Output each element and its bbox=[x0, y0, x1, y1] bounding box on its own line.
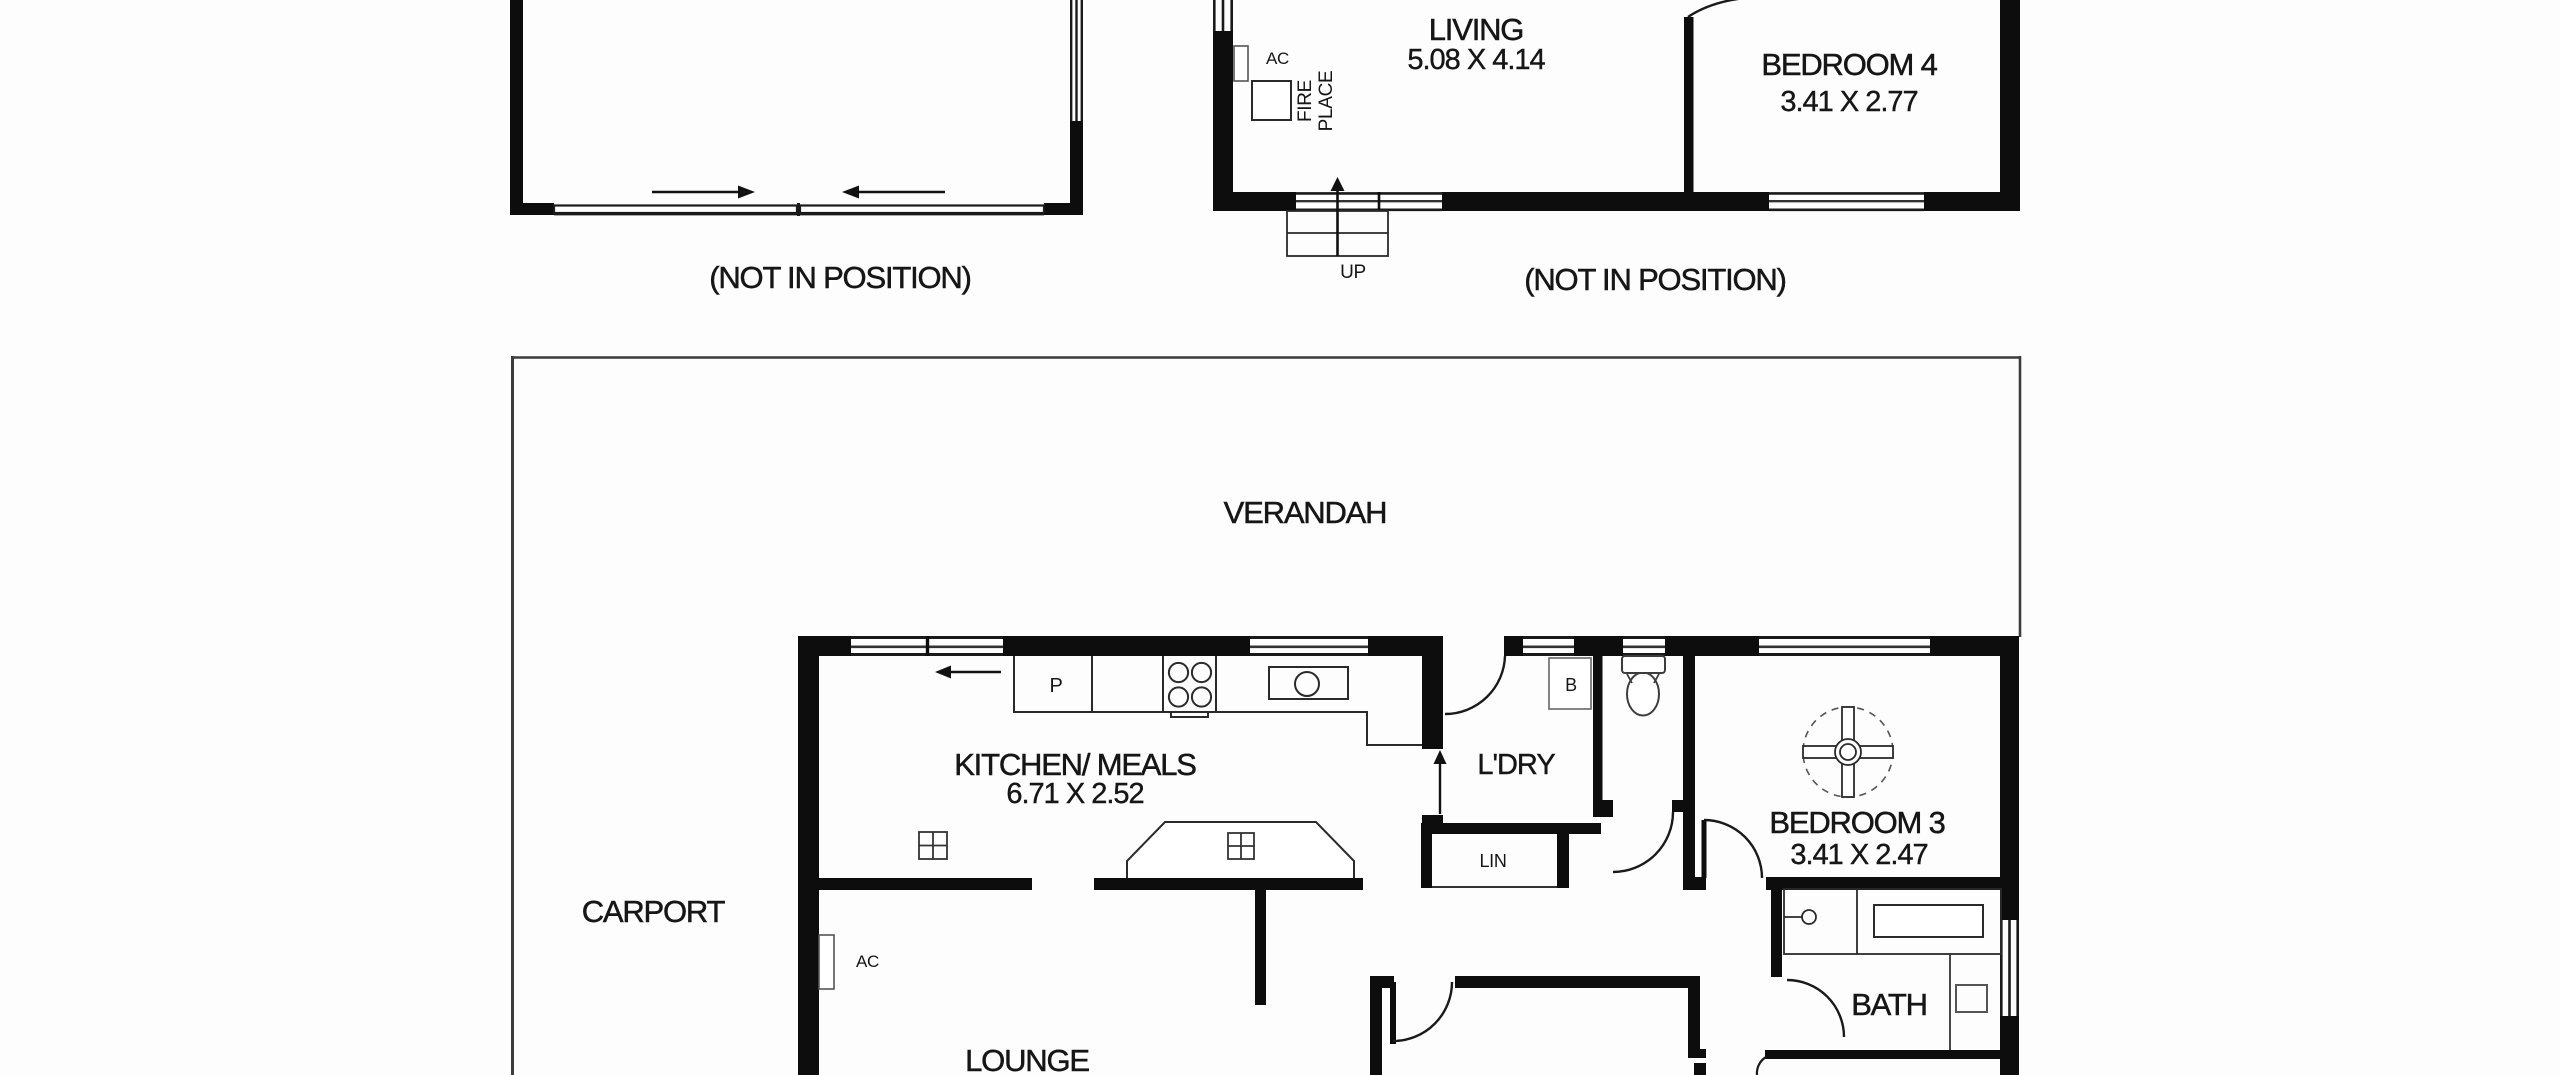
svg-text:3.41 X 2.47: 3.41 X 2.47 bbox=[1790, 839, 1927, 871]
svg-text:BATH: BATH bbox=[1851, 987, 1927, 1022]
svg-text:KITCHEN/ MEALS: KITCHEN/ MEALS bbox=[954, 747, 1196, 782]
svg-text:LOUNGE: LOUNGE bbox=[965, 1043, 1089, 1075]
svg-text:3.41 X 2.77: 3.41 X 2.77 bbox=[1780, 86, 1917, 118]
svg-text:AC: AC bbox=[1266, 49, 1289, 68]
svg-text:5.08 X 4.14: 5.08 X 4.14 bbox=[1407, 44, 1545, 76]
svg-text:(NOT IN POSITION): (NOT IN POSITION) bbox=[1524, 262, 1785, 297]
svg-text:LIN: LIN bbox=[1479, 851, 1506, 871]
svg-text:6.71 X 2.52: 6.71 X 2.52 bbox=[1006, 778, 1143, 810]
svg-text:UP: UP bbox=[1340, 262, 1366, 283]
svg-text:B: B bbox=[1565, 675, 1577, 695]
svg-text:CARPORT: CARPORT bbox=[582, 894, 726, 929]
svg-text:(NOT IN POSITION): (NOT IN POSITION) bbox=[709, 260, 970, 295]
svg-text:L'DRY: L'DRY bbox=[1477, 749, 1555, 781]
svg-text:LIVING: LIVING bbox=[1429, 12, 1523, 47]
svg-text:BEDROOM 4: BEDROOM 4 bbox=[1761, 47, 1937, 82]
svg-text:BEDROOM 3: BEDROOM 3 bbox=[1769, 805, 1944, 840]
svg-text:AC: AC bbox=[856, 952, 879, 971]
svg-text:P: P bbox=[1049, 675, 1062, 697]
svg-text:VERANDAH: VERANDAH bbox=[1224, 495, 1387, 530]
